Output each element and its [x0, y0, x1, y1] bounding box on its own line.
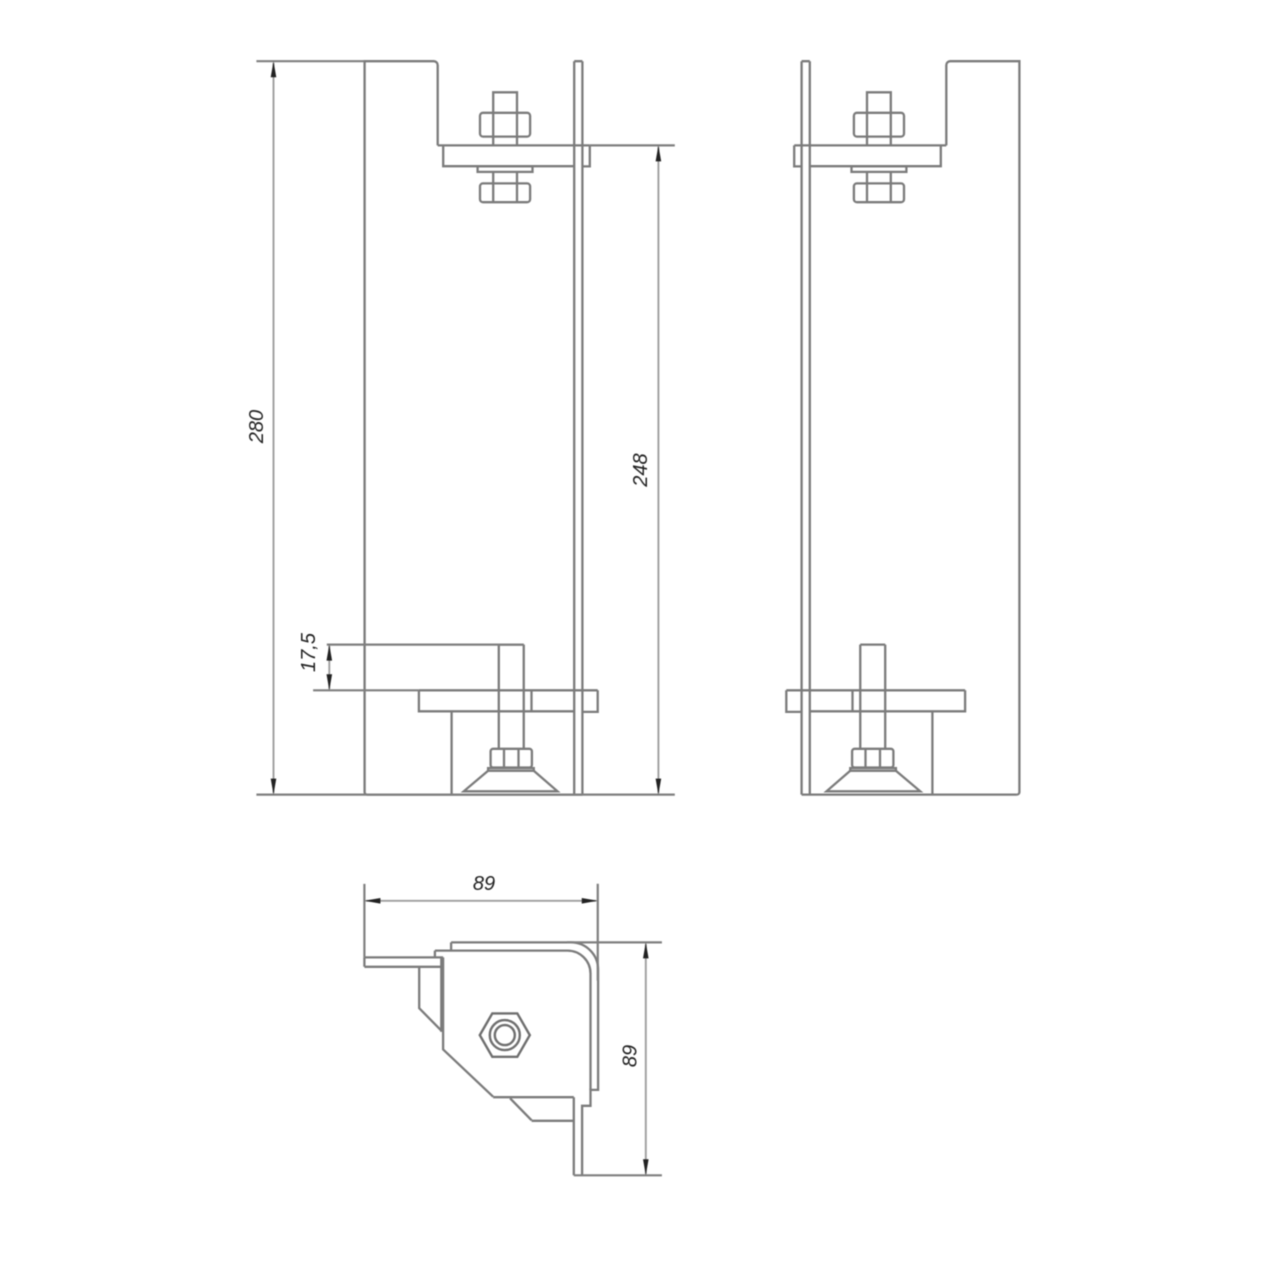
svg-text:17,5: 17,5	[298, 632, 320, 672]
svg-text:248: 248	[630, 453, 652, 487]
svg-text:280: 280	[246, 410, 268, 444]
svg-text:89: 89	[473, 873, 495, 895]
svg-text:89: 89	[620, 1045, 642, 1067]
